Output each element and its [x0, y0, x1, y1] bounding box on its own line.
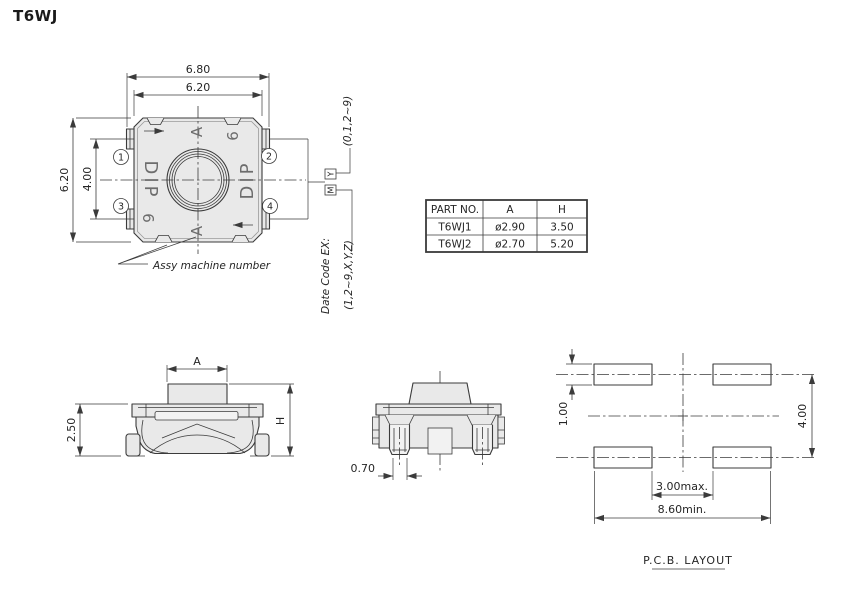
dim-terminal-width: 0.70 — [351, 462, 376, 475]
mark-dip-left: DIP — [140, 160, 161, 199]
month-mark: M — [327, 186, 336, 193]
plunger-front — [168, 384, 227, 405]
side-view-dimensions: 0.70 — [351, 458, 423, 480]
cell-part: T6WJ2 — [437, 239, 471, 251]
terminal-front — [255, 434, 269, 456]
year-mark: Y — [327, 171, 336, 177]
assy-note-label: Assy machine number — [152, 260, 271, 272]
housing-recess — [155, 412, 238, 421]
dim-pad-height: 1.00 — [557, 402, 570, 427]
pin-number: 1 — [118, 153, 124, 164]
pin-number: 3 — [118, 202, 124, 213]
mark-digit-bottom-left: 6 — [139, 213, 157, 223]
cell-a: ø2.70 — [495, 239, 525, 251]
table-row: T6WJ2 ø2.70 5.20 — [437, 239, 573, 251]
cell-h: 5.20 — [550, 239, 573, 251]
mark-dip-right: DIP — [237, 160, 258, 199]
dim-row-pitch: 4.00 — [796, 404, 809, 429]
date-code-callout: Y M (0,1,2~9) Date Code EX: (1,2~9,X,Y,Z… — [308, 96, 355, 314]
dim-total-height: H — [274, 417, 287, 425]
cell-part: T6WJ1 — [437, 222, 471, 234]
plunger-side — [409, 383, 471, 404]
extension-lines — [393, 458, 407, 480]
side-tab — [373, 417, 380, 444]
top-view: A A DIP DIP 6 6 1 2 3 4 — [58, 63, 308, 272]
center-stem — [428, 428, 452, 454]
dim-outer-span: 8.60min. — [658, 503, 707, 516]
year-leader — [336, 148, 350, 173]
month-values: (1,2~9,X,Y,Z) — [343, 240, 355, 310]
mark-letter-bottom: A — [188, 225, 206, 236]
cell-a: ø2.90 — [495, 222, 525, 234]
side-view: 0.70 — [351, 371, 505, 480]
dim-terminal-pitch: 4.00 — [81, 167, 94, 192]
dim-outer-width: 6.80 — [186, 63, 211, 76]
extension-lines — [566, 364, 771, 524]
pcb-center-cross — [678, 411, 688, 421]
drawing-canvas: A A DIP DIP 6 6 1 2 3 4 — [0, 0, 865, 606]
col-header-part: PART NO. — [431, 204, 479, 216]
dim-body-height: 6.20 — [58, 168, 71, 193]
cell-h: 3.50 — [550, 222, 573, 234]
date-code-title: Date Code EX: — [320, 238, 332, 314]
front-view: A 2.50 H — [65, 355, 294, 456]
callout-bracket — [308, 139, 325, 219]
table-row: T6WJ1 ø2.90 3.50 — [437, 222, 573, 234]
pin-number: 2 — [266, 152, 272, 163]
dim-button-dia: A — [193, 355, 201, 368]
mark-letter-top: A — [188, 126, 206, 137]
dim-inner-gap: 3.00max. — [656, 480, 708, 493]
dim-body-width: 6.20 — [186, 81, 211, 94]
spec-table: PART NO. A H T6WJ1 ø2.90 3.50 T6WJ2 ø2.7… — [426, 200, 587, 252]
mark-digit-top-right: 6 — [224, 131, 242, 141]
side-tab — [498, 417, 505, 444]
year-values: (0,1,2~9) — [342, 96, 354, 146]
terminal-tab — [262, 129, 270, 149]
dim-body-height: 2.50 — [65, 418, 78, 443]
pcb-caption: P.C.B. LAYOUT — [643, 554, 733, 567]
terminal-front — [126, 434, 140, 456]
pcb-layout: 1.00 4.00 3.00max. 8.60min. P.C.B. LAYOU… — [556, 349, 816, 569]
col-header-a: A — [506, 204, 514, 216]
col-header-h: H — [558, 204, 566, 216]
pin-number: 4 — [267, 202, 273, 213]
cover-flange-side — [376, 404, 501, 415]
datasheet-page: T6WJ — [0, 0, 865, 606]
